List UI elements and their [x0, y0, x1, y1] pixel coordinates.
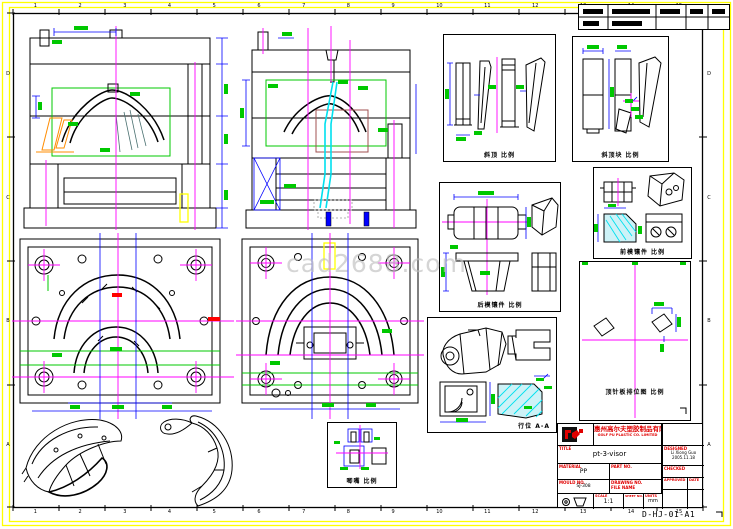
drawing-code: D-HJ-01-A1 — [642, 510, 695, 519]
construction-lines — [32, 233, 212, 419]
zone-label: 11 — [484, 4, 490, 11]
visor-wireframe — [22, 419, 122, 495]
zone-label: 6 — [257, 510, 260, 517]
material-value: PP — [558, 469, 609, 476]
zone-label: 2 — [78, 510, 81, 517]
company-logo — [559, 425, 593, 445]
part-no-cell: PART NO. — [610, 464, 662, 480]
scale-cell: SCALE 1:1 — [594, 494, 624, 509]
slider-iso-view — [441, 328, 506, 374]
date-cell: DATE — [688, 478, 704, 490]
plan-view-core — [12, 233, 234, 419]
detail-box-lifter-block: 斜顶块 比例 — [572, 36, 669, 162]
part-sketch-left — [18, 408, 136, 508]
detail-label-sprue: 唧嘴 比例 — [328, 479, 396, 485]
slider-plan-detail — [440, 382, 486, 416]
approved-label: APPROVED — [663, 478, 687, 483]
part-dome-section — [62, 84, 164, 143]
zone-scale-left: DCBA — [4, 13, 12, 507]
zone-label: D — [4, 72, 12, 77]
file-name-label: FILE NAME — [610, 485, 661, 490]
date-label: DATE — [688, 478, 704, 483]
zone-label: 14 — [628, 510, 634, 517]
zone-label: 4 — [168, 4, 171, 11]
revision-table-grid — [578, 4, 730, 30]
visor-wireframe — [161, 416, 233, 506]
slider-profile-view — [508, 330, 550, 360]
zone-label: 9 — [392, 4, 395, 11]
zone-label: 10 — [436, 510, 442, 517]
zone-scale-right: DCBA — [705, 13, 713, 507]
designed-cell: DESIGNED Li Xiong Guo 2005.11.18 — [662, 446, 704, 466]
detail-label-cavity-insert: 前模镶件 比例 — [594, 250, 691, 256]
zone-label: 7 — [302, 510, 305, 517]
cavity-arches — [54, 275, 180, 373]
detail-box-ejector-plate: 顶针板排位图 比例 — [579, 261, 691, 421]
ejector-pins — [326, 212, 369, 226]
ejector-features — [594, 314, 686, 414]
zone-label: 9 — [392, 510, 395, 517]
detail-label-ejector-plate: 顶针板排位图 比例 — [580, 390, 690, 396]
detail-box-core-insert: 后模镶件 比例 — [439, 182, 561, 312]
zone-label: 11 — [484, 510, 490, 517]
date-value-cell — [688, 490, 704, 509]
blank-cell — [662, 424, 704, 446]
title-block: 惠州高尔夫塑胶制品有限公司 GOLF PU PLASTIC CO. LIMITE… — [557, 423, 703, 508]
hatched-insert — [604, 214, 636, 242]
detail-label-core-insert: 后模镶件 比例 — [440, 303, 560, 309]
mould-no-cell: MOULD NO. SJ-308 — [558, 480, 610, 494]
third-angle-projection-icon — [559, 495, 593, 508]
projection-symbol-cell — [558, 494, 594, 509]
section-view-front — [12, 22, 234, 234]
zone-label: 8 — [347, 510, 350, 517]
part-title-value: pt-3-visor — [558, 451, 661, 459]
hidden-detail — [314, 200, 352, 218]
dimension-text-blobs — [445, 85, 524, 141]
zone-label: 3 — [123, 510, 126, 517]
zone-label: 5 — [213, 510, 216, 517]
checked-cell: CHECKED — [662, 466, 704, 478]
zone-label: A — [4, 443, 12, 448]
centerlines — [12, 233, 234, 419]
company-logo-cell — [558, 424, 594, 446]
zone-scale-bottom: 123456789101112131415 — [13, 510, 703, 517]
zone-label: C — [705, 196, 713, 201]
dimension-text-blobs — [582, 262, 686, 352]
zone-label: 4 — [168, 510, 171, 517]
zone-label: C — [4, 196, 12, 201]
zone-label: 12 — [532, 4, 538, 11]
approved-value-cell — [662, 490, 688, 509]
checked-label: CHECKED — [663, 466, 704, 471]
detail-label-slider: 行位 A-A — [428, 424, 556, 430]
detail-box-slider: 行位 A-A — [427, 317, 557, 433]
material-cell: MATERIAL PP — [558, 464, 610, 480]
part-sketch-right — [138, 408, 240, 508]
corner-mark — [716, 512, 722, 517]
detail-box-sprue: 唧嘴 比例 — [327, 422, 397, 488]
dimension-lines — [652, 308, 676, 342]
detail-label-lifter: 斜顶 比例 — [444, 153, 555, 159]
units-cell: UNITS mm — [644, 494, 662, 509]
scale-value: 1:1 — [594, 499, 623, 506]
part-no-label: PART NO. — [610, 464, 661, 469]
cad-drawing-sheet: 123456789101112131415 123456789101112131… — [0, 0, 733, 529]
sheet-no-label: SHEET NO. — [624, 494, 643, 498]
zone-label: 1 — [34, 4, 37, 11]
detail-box-cavity-insert: 前模镶件 比例 — [593, 167, 692, 259]
mould-no-value: SJ-308 — [558, 485, 609, 490]
watermark: cad2688.com — [286, 249, 467, 278]
zone-label: 13 — [580, 510, 586, 517]
zone-label: B — [4, 319, 12, 324]
title-cell: TITLE pt-3-visor — [558, 446, 662, 464]
revision-table — [578, 4, 730, 30]
zone-label: 3 — [123, 4, 126, 11]
company-name-cell: 惠州高尔夫塑胶制品有限公司 GOLF PU PLASTIC CO. LIMITE… — [594, 424, 662, 446]
centerline — [623, 93, 639, 117]
detail-box-lifter: 斜顶 比例 — [443, 34, 556, 162]
zone-label: 5 — [213, 4, 216, 11]
company-name-cn: 惠州高尔夫塑胶制品有限公司 — [594, 426, 661, 433]
zone-label: B — [705, 319, 713, 324]
mold-plates — [24, 30, 216, 228]
designed-date: 2005.11.18 — [663, 456, 704, 460]
drawing-no-cell: DRAWING NO. FILE NAME — [610, 480, 662, 494]
units-value: mm — [644, 499, 662, 505]
detail-label-lifter-block: 斜顶块 比例 — [573, 153, 668, 159]
zone-label: 2 — [78, 4, 81, 11]
company-name-en: GOLF PU PLASTIC CO. LIMITED — [594, 433, 661, 437]
cooling-lines — [20, 275, 220, 365]
lifter-block-parts — [583, 57, 661, 133]
lifter-rod-highlight — [320, 82, 337, 208]
lifter-parts — [454, 58, 545, 131]
zone-label: 8 — [347, 4, 350, 11]
dimension-lines — [447, 63, 526, 135]
zone-label: 10 — [436, 4, 442, 11]
zone-label: 12 — [532, 510, 538, 517]
section-view-side — [238, 24, 424, 234]
sprue-detail — [350, 432, 386, 464]
centerlines — [263, 26, 394, 230]
zone-label: 7 — [302, 4, 305, 11]
sheet-no-cell: SHEET NO. — [624, 494, 644, 509]
zone-label: A — [705, 443, 713, 448]
dimension-text-blobs — [38, 26, 228, 200]
zone-label: 1 — [34, 510, 37, 517]
sprue-outline — [344, 429, 372, 466]
approved-cell: APPROVED — [662, 478, 688, 490]
zone-label: D — [705, 72, 713, 77]
zone-label: 6 — [257, 4, 260, 11]
